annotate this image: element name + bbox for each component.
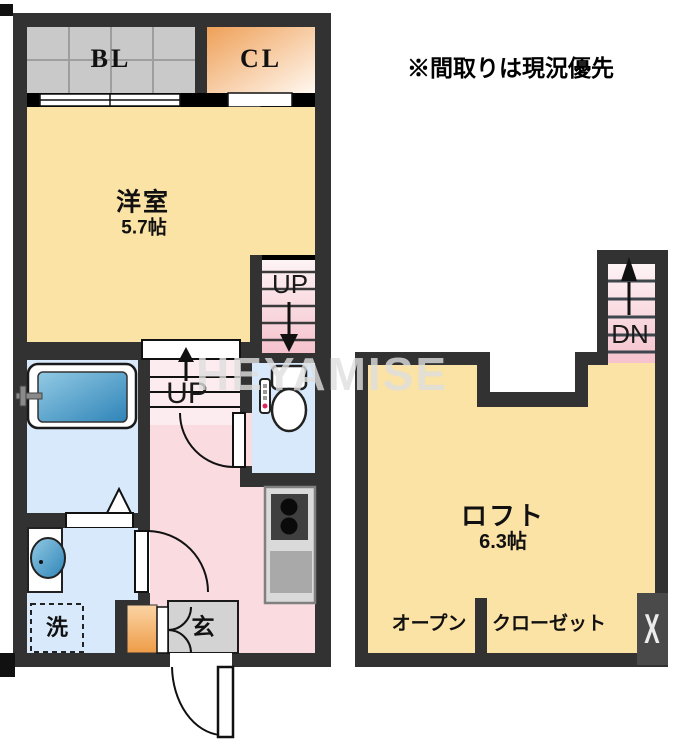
basin-drain-dot (39, 560, 43, 564)
loft-plan (355, 250, 668, 667)
tub-faucet-v (20, 386, 26, 406)
wall-bottom-left (13, 653, 170, 667)
wash-basin (31, 538, 65, 578)
storage-open-label: オープン (392, 615, 467, 634)
window-x-mark: X (644, 605, 659, 653)
wall-bl-cl-divider (195, 13, 207, 107)
stairs-upper-top-edge (262, 255, 315, 260)
wall-top (13, 13, 331, 27)
loft-storage-divider (475, 598, 487, 653)
western-room-label: 洋室 (116, 191, 170, 216)
wall-right (315, 13, 331, 667)
entrance-step-orange (127, 605, 157, 653)
stove-burner (281, 499, 298, 516)
wall-stairs-west (250, 255, 262, 358)
entrance-opening (170, 653, 232, 667)
wall-bottom-right (232, 653, 331, 667)
wall-wash-lower (115, 600, 127, 655)
kitchen-sink (270, 551, 312, 593)
wall-toilet-bottom (240, 473, 315, 487)
loft-notch-right (575, 352, 588, 407)
bath-folding-door-bar (66, 513, 133, 528)
western-room-size: 5.7帖 (121, 219, 166, 238)
kitchen-unit (265, 487, 315, 603)
balcony-label: BL (91, 46, 132, 72)
washroom-floor-lower (27, 600, 115, 653)
bathtub-water (38, 372, 127, 422)
laundry-label: 洗 (46, 617, 68, 639)
wall-bath-hall (138, 360, 150, 532)
watermark-text: HEYAMISE (196, 347, 448, 401)
wall-bath-wash-left (27, 513, 66, 528)
floorplan-image: BL CL 洋室 5.7帖 UP UP 玄 洗 ロフト 6.3帖 DN オープン… (0, 0, 680, 750)
entrance-door-leaf (218, 667, 233, 737)
wall-room-bath (27, 342, 142, 360)
storage-closet-label: クローゼット (492, 615, 606, 634)
toilet-panel-red-dot (263, 404, 268, 409)
closet-label: CL (240, 46, 282, 72)
loft-room-label: ロフト (461, 503, 545, 529)
stairs-down-label: DN (611, 321, 649, 347)
loft-tower-left (597, 250, 608, 365)
loft-notch-void (490, 352, 575, 392)
toilet-door-leaf (233, 413, 245, 467)
corner-block-bl (0, 653, 15, 677)
corner-block-tl (0, 4, 13, 16)
notice-text: ※間取りは現況優先 (407, 49, 614, 83)
stairs-upper-label: UP (272, 271, 308, 297)
shoe-cabinet-door-strip (157, 607, 168, 653)
closet-opening (228, 93, 292, 107)
stove-burner (281, 518, 298, 535)
wall-bath-corner (133, 513, 150, 530)
entrance-door-arc (172, 667, 220, 735)
loft-notch-bottom (477, 392, 588, 407)
washroom-door-leaf (135, 531, 148, 592)
entrance-label: 玄 (192, 616, 215, 639)
wall-left (13, 13, 27, 667)
loft-room-size: 6.3帖 (479, 532, 527, 552)
loft-wall-bottom (355, 653, 668, 667)
